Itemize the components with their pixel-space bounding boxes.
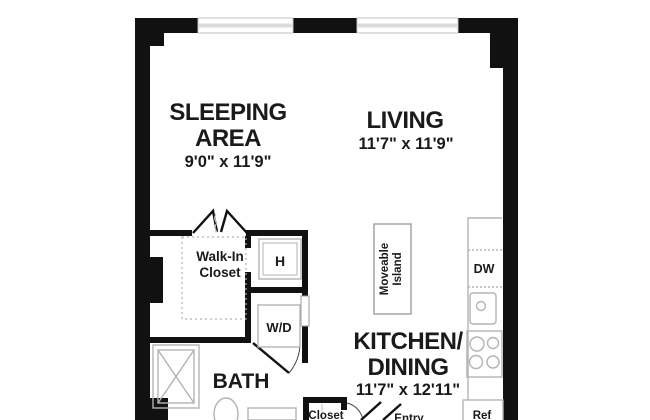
wall [150,33,164,46]
walk-in-closet-label: Closet [199,265,241,280]
bifold-door-icon [193,211,247,233]
wall [341,397,347,410]
living-dimensions: 11'7" x 11'9" [358,135,453,153]
bath-label: BATH [213,370,270,393]
wall [245,236,251,248]
dishwasher-label: DW [474,262,495,276]
wall [135,18,150,420]
entry-label: Entry [394,413,424,420]
toilet-icon [214,398,238,420]
window-icon [357,18,458,33]
heater-label: H [275,253,285,269]
wall [148,337,248,343]
wall [303,397,347,403]
walk-in-closet-label: Walk-In [196,249,244,264]
wall [245,287,308,293]
entry-door-swing [347,402,401,420]
svg-text:Moveable: Moveable [379,243,391,295]
kitchen-dining-label: DINING [368,354,449,381]
wall [503,33,518,420]
sleeping-area-label: AREA [195,125,261,152]
sink-icon [470,293,496,324]
stove-icon [467,331,502,377]
kitchen-dining-dimensions: 11'7" x 12'11" [356,381,460,399]
svg-text:Island: Island [392,252,404,285]
wall [458,18,518,33]
wall [150,257,163,303]
entry-closet-label: Closet [308,410,343,420]
wall [148,230,192,236]
room-labels: SLEEPING AREA 9'0" x 11'9" LIVING 11'7" … [169,99,463,420]
door-jamb [301,296,309,326]
floor-plan: SLEEPING AREA 9'0" x 11'9" LIVING 11'7" … [0,0,650,420]
floor-plan-page: SLEEPING AREA 9'0" x 11'9" LIVING 11'7" … [0,0,650,420]
island-label: Moveable Island [379,243,404,295]
wall [246,230,308,236]
wall [293,18,357,33]
sleeping-area-label: SLEEPING [169,99,286,126]
vanity-icon [248,408,296,420]
sleeping-area-dimensions: 9'0" x 11'9" [185,153,272,171]
refrigerator-label: Ref [473,410,492,420]
window-icon [198,18,293,33]
living-label: LIVING [366,107,443,134]
kitchen-counter [463,218,503,420]
walls [135,18,518,420]
washer-dryer-label: W/D [266,320,291,335]
kitchen-dining-label: KITCHEN/ [353,328,463,355]
